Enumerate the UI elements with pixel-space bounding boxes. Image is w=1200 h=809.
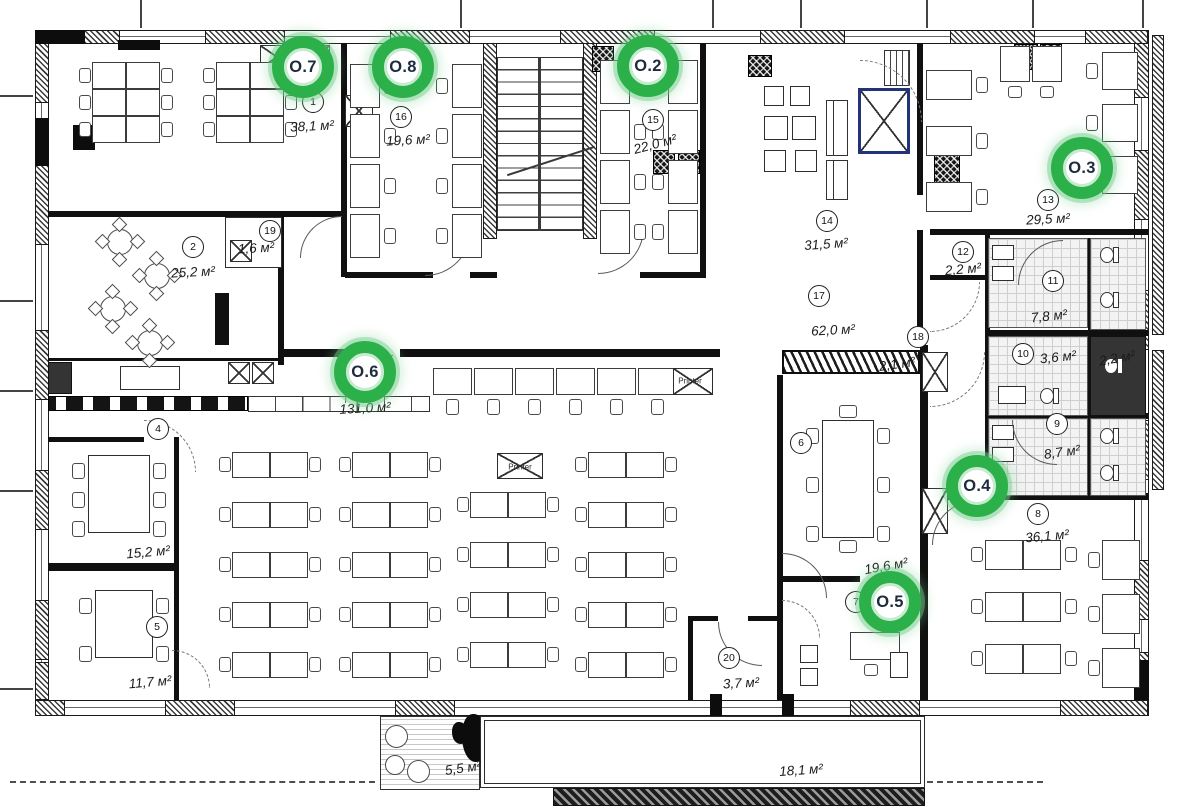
chair (161, 122, 173, 137)
desk (92, 62, 126, 89)
wall-pier (710, 694, 722, 716)
chair (429, 507, 441, 522)
unit-marker-O.4[interactable]: O.4 (946, 455, 1008, 517)
unit-marker-O.6[interactable]: O.6 (334, 341, 396, 403)
cafe-table (137, 330, 163, 356)
chair (203, 68, 215, 83)
exterior-wall-pier (483, 43, 497, 239)
desk (352, 652, 390, 678)
cafe-chair (130, 234, 146, 250)
deck-area-18-1 (480, 716, 925, 788)
desk (1102, 594, 1140, 634)
exterior-wall-pier (1085, 30, 1148, 44)
chair (665, 657, 677, 672)
desk (588, 452, 626, 478)
exterior-wall-pier (1152, 350, 1164, 490)
chair (1065, 547, 1077, 562)
dimension-tick (926, 0, 928, 28)
chair (487, 399, 500, 415)
desk (452, 214, 482, 258)
terrace-plant (452, 722, 468, 744)
chair (457, 497, 469, 512)
desk (126, 89, 160, 116)
chair (156, 598, 169, 614)
desk (126, 116, 160, 143)
unit-marker-label: O.7 (289, 58, 317, 77)
chair (651, 399, 664, 415)
room-area-17: 62,0 м² (811, 321, 856, 338)
desk (626, 452, 664, 478)
unit-marker-label: O.6 (351, 363, 379, 382)
desk (508, 492, 546, 518)
chair (634, 174, 646, 190)
desk (597, 368, 636, 395)
chair (219, 557, 231, 572)
room-number-20: 20 (718, 647, 740, 669)
chair (575, 657, 587, 672)
coffee-table (790, 86, 810, 106)
chair (203, 95, 215, 110)
area-label: 15,2 м² (126, 543, 171, 562)
dimension-tick (712, 0, 714, 28)
interior-wall (688, 616, 718, 621)
chair (219, 457, 231, 472)
desk (1102, 52, 1138, 90)
room-number-16: 16 (390, 106, 412, 128)
desk (626, 502, 664, 528)
coffee-table (764, 150, 786, 172)
interior-wall (470, 272, 497, 278)
desk (1023, 592, 1061, 622)
room-number-9: 9 (1046, 413, 1068, 435)
desk (508, 642, 546, 668)
kitchen-sink (252, 362, 274, 384)
printer-label: Printer (508, 463, 532, 472)
desk (216, 89, 250, 116)
desk (92, 89, 126, 116)
cafe-chair (160, 335, 176, 351)
desk (470, 492, 508, 518)
chair (976, 133, 988, 149)
chair (457, 647, 469, 662)
desk (600, 110, 630, 154)
toilet (1100, 428, 1114, 444)
chair (309, 607, 321, 622)
desk (1102, 540, 1140, 580)
desk (638, 368, 677, 395)
door-arc (930, 282, 980, 332)
toilet (1040, 388, 1054, 404)
chair (547, 547, 559, 562)
room-area-12: 2,2 м² (944, 260, 981, 278)
washbasin (992, 425, 1014, 440)
chair (429, 657, 441, 672)
chair (72, 492, 85, 508)
chair (79, 646, 92, 662)
desk (350, 214, 380, 258)
exterior-wall-pier (1152, 35, 1164, 335)
interior-wall (48, 563, 176, 571)
chair (971, 547, 983, 562)
unit-marker-label: O.5 (876, 593, 904, 612)
interior-wall (777, 375, 783, 700)
desk (250, 89, 284, 116)
chair (457, 597, 469, 612)
chair (309, 657, 321, 672)
room-number-15: 15 (642, 109, 664, 131)
exterior-wall-pier (165, 700, 235, 716)
washbasin (992, 447, 1014, 462)
unit-marker-O.3[interactable]: O.3 (1051, 137, 1113, 199)
chair (1088, 606, 1100, 622)
desk (92, 116, 126, 143)
room-number-17: 17 (808, 285, 830, 307)
room-area-16: 19,6 м² (386, 131, 431, 148)
chair (575, 557, 587, 572)
desk (508, 542, 546, 568)
chair (156, 646, 169, 662)
kitchen-appliance (120, 366, 180, 390)
chair (309, 507, 321, 522)
chair (976, 189, 988, 205)
chair (436, 78, 448, 94)
chair (79, 122, 91, 137)
chair (839, 405, 857, 418)
desk (1102, 104, 1138, 142)
desk (250, 116, 284, 143)
desk (390, 502, 428, 528)
plant-box (748, 55, 772, 77)
exterior-wall-pier (35, 662, 49, 700)
printer-label: Printer (678, 377, 702, 386)
chair (971, 651, 983, 666)
chair (161, 68, 173, 83)
room-number-5: 5 (146, 616, 168, 638)
chair (339, 657, 351, 672)
cafe-table (107, 229, 133, 255)
room-area-5: 11,7 м² (128, 673, 172, 692)
chair (652, 224, 664, 240)
chair (219, 657, 231, 672)
desk (352, 452, 390, 478)
exterior-wall-pier (35, 330, 49, 400)
interior-wall (400, 349, 720, 357)
chair (79, 68, 91, 83)
dashed-boundary (927, 781, 1043, 783)
side-table (800, 645, 818, 663)
chair (971, 599, 983, 614)
meeting-table (95, 590, 153, 658)
desk (352, 502, 390, 528)
desk (1032, 46, 1062, 82)
interior-wall (48, 358, 280, 361)
room-number-8: 8 (1027, 503, 1049, 525)
kitchen-unit (48, 362, 72, 394)
chair (547, 497, 559, 512)
exterior-wall-pier (35, 165, 49, 245)
sofa (826, 160, 848, 200)
chair (153, 521, 166, 537)
chair (976, 77, 988, 93)
desk (1102, 648, 1140, 688)
chair (1008, 86, 1022, 98)
chair (610, 399, 623, 415)
chair (219, 607, 231, 622)
cafe-table (100, 296, 126, 322)
toilet (1100, 292, 1114, 308)
door-arc (782, 600, 820, 638)
chair (161, 95, 173, 110)
desk (270, 452, 308, 478)
chair (839, 540, 857, 553)
desk (474, 368, 513, 395)
dimension-tick (800, 0, 802, 28)
unit-marker-label: O.3 (1068, 159, 1096, 178)
desk (668, 210, 698, 254)
room-number-19: 19 (259, 220, 281, 242)
room-area-14: 31,5 м² (804, 235, 849, 253)
chair (436, 228, 448, 244)
chair (429, 457, 441, 472)
sink-counter (998, 386, 1026, 404)
interior-wall (215, 293, 229, 345)
desk (232, 602, 270, 628)
room-number-2: 2 (182, 236, 204, 258)
desk (452, 164, 482, 208)
desk (626, 602, 664, 628)
exterior-wall-pier (35, 700, 65, 716)
desk (626, 552, 664, 578)
room-number-6: 6 (790, 432, 812, 454)
chair (1088, 660, 1100, 676)
room-area-19: 1,6 м² (237, 240, 274, 257)
chair (528, 399, 541, 415)
side-table (890, 652, 908, 678)
room-number-11: 11 (1042, 270, 1064, 292)
chair (384, 178, 396, 194)
cafe-chair (105, 319, 121, 335)
desk (508, 592, 546, 618)
desk (232, 452, 270, 478)
desk (668, 160, 698, 204)
wall-pier (118, 40, 160, 50)
desk (985, 540, 1023, 570)
washbasin (992, 266, 1014, 281)
chair (72, 463, 85, 479)
chair (429, 557, 441, 572)
side-table (800, 668, 818, 686)
desk (600, 160, 630, 204)
unit-marker-O.2[interactable]: O.2 (617, 35, 679, 97)
chair (339, 607, 351, 622)
chair (436, 128, 448, 144)
bar-counter-with-stools (48, 396, 248, 411)
desk (216, 62, 250, 89)
chair (309, 457, 321, 472)
dimension-tick (0, 490, 33, 492)
area-label: 18,1 м² (779, 761, 824, 779)
chair (634, 224, 646, 240)
sofa (826, 100, 848, 156)
exterior-wall-pier (35, 470, 49, 530)
interior-wall (930, 229, 1148, 235)
door-arc (300, 216, 342, 258)
unit-marker-O.8[interactable]: O.8 (372, 36, 434, 98)
desk (626, 652, 664, 678)
interior-wall (280, 349, 346, 357)
stairs-divider (538, 57, 541, 231)
desk (216, 116, 250, 143)
door-arc (930, 352, 985, 407)
chair (665, 607, 677, 622)
interior-wall (345, 272, 433, 278)
chair (457, 547, 469, 562)
terrace-table (407, 760, 430, 783)
room-number-13: 13 (1037, 189, 1059, 211)
chair (806, 477, 819, 493)
dimension-tick (0, 300, 33, 302)
desk (926, 126, 972, 156)
desk (1000, 46, 1030, 82)
desk (452, 114, 482, 158)
chair (877, 526, 890, 542)
desk (390, 602, 428, 628)
unit-marker-label: O.8 (389, 58, 417, 77)
chair (665, 557, 677, 572)
desk (452, 64, 482, 108)
chair (1065, 651, 1077, 666)
desk (350, 164, 380, 208)
room-number-10: 10 (1012, 343, 1034, 365)
chair (806, 526, 819, 542)
desk (470, 592, 508, 618)
desk (352, 552, 390, 578)
desk (232, 502, 270, 528)
chair (285, 95, 297, 110)
unit-marker-label: O.4 (963, 477, 991, 496)
exterior-wall-pier (205, 30, 285, 44)
desk (433, 368, 472, 395)
chair (547, 647, 559, 662)
chair (877, 428, 890, 444)
chair (665, 507, 677, 522)
desk (270, 602, 308, 628)
chair (652, 174, 664, 190)
chair (153, 463, 166, 479)
wall-pier (35, 30, 85, 44)
chair (72, 521, 85, 537)
dimension-tick (0, 95, 33, 97)
room-area-8: 36,1 м² (1025, 527, 1070, 546)
room-area-1: 38,1 м² (290, 117, 335, 134)
desk (270, 652, 308, 678)
meeting-table (88, 455, 150, 533)
desk (926, 182, 972, 212)
chair (79, 598, 92, 614)
room-area-20: 3,7 м² (722, 675, 759, 692)
toilet (1100, 247, 1114, 263)
chair (79, 95, 91, 110)
desk (588, 552, 626, 578)
dimension-tick (1032, 0, 1034, 28)
room-area-2: 25,2 м² (171, 263, 216, 280)
exterior-wall-pier (395, 700, 455, 716)
toilet (1100, 465, 1114, 481)
cafe-chair (123, 301, 139, 317)
dashed-boundary (10, 781, 375, 783)
desk (556, 368, 595, 395)
unit-marker-O.7[interactable]: O.7 (272, 36, 334, 98)
chair (339, 557, 351, 572)
dimension-tick (0, 688, 33, 690)
door-arc (782, 553, 827, 598)
chair (575, 457, 587, 472)
chair (1088, 552, 1100, 568)
cafe-table (144, 263, 170, 289)
terrace-table (385, 725, 408, 748)
desk (470, 642, 508, 668)
desk (600, 210, 630, 254)
exterior-wall-pier (35, 43, 49, 103)
room-number-14: 14 (816, 210, 838, 232)
desk (985, 592, 1023, 622)
chair (203, 122, 215, 137)
chair (864, 664, 878, 676)
desk (985, 644, 1023, 674)
room-number-4: 4 (147, 418, 169, 440)
desk (390, 652, 428, 678)
door-arc (172, 650, 210, 688)
desk (588, 602, 626, 628)
meeting-table (822, 420, 874, 538)
chair (877, 477, 890, 493)
kitchen-sink (228, 362, 250, 384)
desk (390, 452, 428, 478)
exterior-wall-pier (1060, 700, 1148, 716)
exterior-wall-pier (760, 30, 845, 44)
coffee-table (764, 116, 788, 140)
dimension-tick (140, 0, 142, 28)
floor-plan: 138,1 м²1619,6 м²1522,0 м²1329,5 м²1431,… (0, 0, 1200, 809)
interior-wall (48, 437, 144, 442)
dimension-tick (0, 390, 33, 392)
chair (436, 178, 448, 194)
desk (588, 652, 626, 678)
chair (569, 399, 582, 415)
chair (384, 228, 396, 244)
interior-wall (688, 616, 693, 700)
chair (153, 492, 166, 508)
desk (588, 502, 626, 528)
deck-hatch-strip (553, 788, 925, 806)
washbasin (992, 245, 1014, 260)
chair (339, 507, 351, 522)
unit-marker-O.5[interactable]: O.5 (859, 571, 921, 633)
chair (1086, 115, 1098, 131)
chair (446, 399, 459, 415)
chair (575, 607, 587, 622)
chair (339, 457, 351, 472)
chair (219, 507, 231, 522)
coffee-table (764, 86, 784, 106)
room-number-12: 12 (952, 241, 974, 263)
chair (309, 557, 321, 572)
desk (270, 552, 308, 578)
room-number-18: 18 (907, 326, 929, 348)
dimension-tick (460, 0, 462, 28)
terrace-table (385, 755, 405, 775)
chair (1065, 599, 1077, 614)
